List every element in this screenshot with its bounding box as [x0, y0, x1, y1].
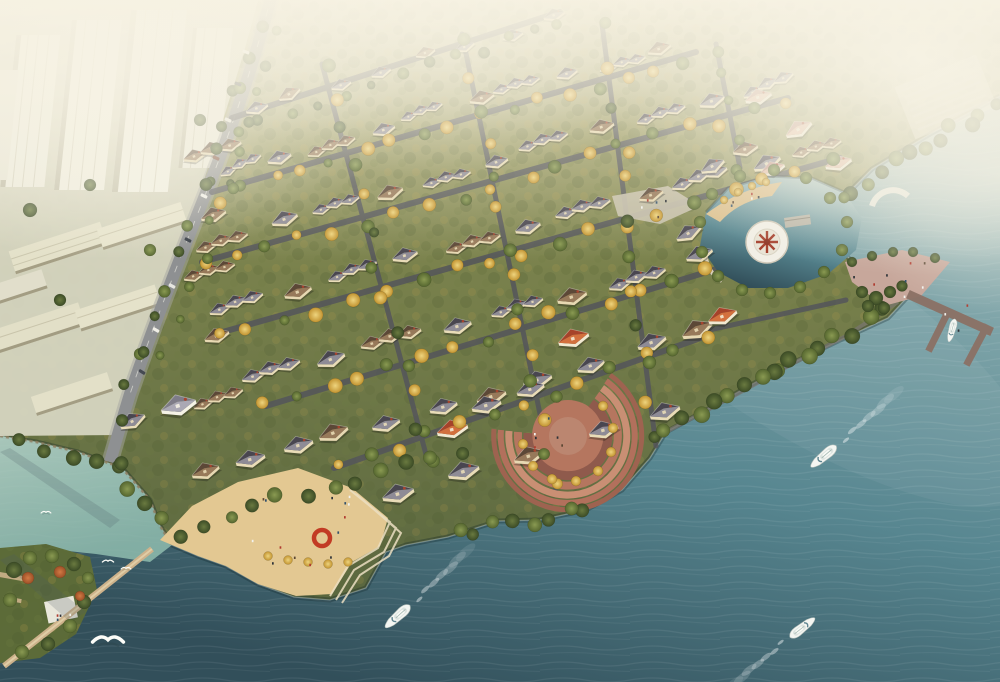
- person: [348, 503, 350, 505]
- tree: [524, 374, 537, 387]
- person: [263, 498, 265, 500]
- tree: [23, 551, 37, 565]
- amphitheater-center: [549, 417, 587, 455]
- tree: [184, 282, 194, 292]
- tree: [13, 433, 26, 446]
- tree: [454, 523, 468, 537]
- tree: [844, 328, 860, 344]
- tree: [451, 259, 463, 271]
- tree: [398, 454, 413, 469]
- tree: [3, 593, 17, 607]
- tree: [54, 566, 66, 578]
- person: [853, 276, 855, 278]
- tree: [527, 349, 539, 361]
- tree: [89, 454, 104, 469]
- tree: [301, 489, 316, 504]
- tree: [137, 496, 152, 511]
- person: [272, 562, 274, 564]
- tree: [67, 557, 81, 571]
- scene-canvas: [0, 0, 1000, 682]
- tree: [737, 377, 752, 392]
- tree: [328, 378, 343, 393]
- tree: [174, 530, 188, 544]
- tree: [54, 294, 66, 306]
- tree: [538, 448, 550, 460]
- tree: [606, 447, 616, 457]
- tree: [489, 409, 500, 420]
- person: [344, 516, 346, 518]
- tree: [414, 349, 428, 363]
- tree: [284, 556, 293, 565]
- tree: [334, 460, 344, 470]
- tree: [598, 401, 608, 411]
- aerial-rendering: [0, 0, 1000, 682]
- tree: [456, 447, 469, 460]
- tree: [702, 331, 715, 344]
- tree: [176, 315, 184, 323]
- tree: [63, 619, 77, 633]
- tree: [155, 511, 169, 525]
- tree: [22, 572, 34, 584]
- person: [337, 531, 339, 533]
- tree: [570, 376, 583, 389]
- tree: [643, 356, 656, 369]
- tree: [755, 369, 771, 385]
- tree: [226, 511, 238, 523]
- tree: [256, 396, 268, 408]
- tree: [603, 361, 616, 374]
- tree: [605, 298, 618, 311]
- tree: [528, 518, 542, 532]
- tree: [694, 407, 710, 423]
- tree: [541, 305, 555, 319]
- tree: [519, 400, 529, 410]
- tree: [639, 396, 652, 409]
- tree: [508, 268, 521, 281]
- person: [548, 417, 550, 419]
- tree: [505, 514, 519, 528]
- tree: [138, 346, 149, 357]
- tree: [674, 411, 689, 426]
- tree: [66, 450, 81, 465]
- tree: [150, 311, 160, 321]
- tree: [373, 463, 388, 478]
- tree: [571, 476, 581, 486]
- tree: [45, 549, 59, 563]
- tree: [409, 384, 421, 396]
- tree: [565, 502, 578, 515]
- person: [349, 496, 351, 498]
- person: [280, 546, 282, 548]
- tree: [239, 323, 251, 335]
- tree: [391, 326, 404, 339]
- tree: [538, 413, 551, 426]
- tree: [630, 319, 642, 331]
- person: [873, 283, 875, 285]
- tree: [37, 445, 51, 459]
- tree: [116, 414, 128, 426]
- tree: [292, 391, 302, 401]
- tree: [446, 341, 458, 353]
- tree: [267, 487, 282, 502]
- tree: [417, 272, 431, 286]
- tree: [878, 302, 890, 314]
- tree: [467, 528, 479, 540]
- person: [330, 556, 332, 558]
- person: [344, 502, 346, 504]
- person: [294, 557, 296, 559]
- person: [534, 433, 536, 435]
- tree: [736, 284, 748, 296]
- tree: [423, 451, 437, 465]
- person: [557, 436, 559, 438]
- tree: [197, 520, 210, 533]
- tree: [453, 415, 466, 428]
- person: [265, 499, 267, 501]
- tree: [329, 481, 343, 495]
- person: [561, 444, 563, 446]
- tree: [348, 477, 362, 491]
- tree: [625, 285, 637, 297]
- tree: [528, 461, 538, 471]
- tree: [82, 572, 94, 584]
- tree: [245, 499, 259, 513]
- tree: [403, 360, 415, 372]
- tree: [380, 358, 393, 371]
- tree: [346, 293, 360, 307]
- tree: [706, 393, 722, 409]
- tree: [365, 448, 379, 462]
- tree: [862, 300, 874, 312]
- tree: [483, 337, 494, 348]
- tree: [304, 558, 313, 567]
- tree: [666, 344, 678, 356]
- tree: [156, 351, 165, 360]
- person: [534, 446, 536, 448]
- tree: [120, 481, 135, 496]
- tree: [41, 637, 55, 651]
- tree: [350, 372, 364, 386]
- tree: [324, 560, 333, 569]
- tree: [698, 261, 712, 275]
- person: [309, 564, 311, 566]
- tree: [158, 285, 170, 297]
- tree: [15, 645, 29, 659]
- tree: [656, 424, 670, 438]
- tree: [366, 262, 378, 274]
- tree: [75, 591, 85, 601]
- tree: [344, 558, 353, 567]
- tree: [518, 439, 528, 449]
- tree: [551, 391, 563, 403]
- tree: [566, 306, 580, 320]
- tree: [608, 423, 618, 433]
- tree: [764, 287, 776, 299]
- tree: [547, 474, 557, 484]
- tree: [409, 423, 422, 436]
- tree: [856, 286, 868, 298]
- tree: [542, 513, 555, 526]
- person: [331, 497, 333, 499]
- tree: [824, 328, 839, 343]
- person: [958, 329, 960, 331]
- tree: [264, 552, 273, 561]
- person: [60, 615, 62, 617]
- tree: [114, 456, 128, 470]
- tree: [6, 562, 22, 578]
- person: [944, 313, 946, 315]
- tree: [486, 515, 499, 528]
- person: [57, 614, 59, 616]
- tree: [665, 274, 679, 288]
- person: [904, 296, 906, 298]
- person: [69, 614, 71, 616]
- tree: [118, 379, 129, 390]
- tree: [794, 281, 806, 293]
- tree: [280, 315, 290, 325]
- tree: [802, 348, 818, 364]
- tree: [308, 308, 323, 323]
- person: [252, 540, 254, 542]
- tree: [374, 291, 387, 304]
- tree: [509, 317, 522, 330]
- person: [535, 437, 537, 439]
- tree: [214, 328, 225, 339]
- person: [57, 619, 59, 621]
- tree: [818, 266, 830, 278]
- tree: [712, 270, 724, 282]
- tree: [593, 466, 603, 476]
- tree: [511, 303, 523, 315]
- tree: [884, 286, 896, 298]
